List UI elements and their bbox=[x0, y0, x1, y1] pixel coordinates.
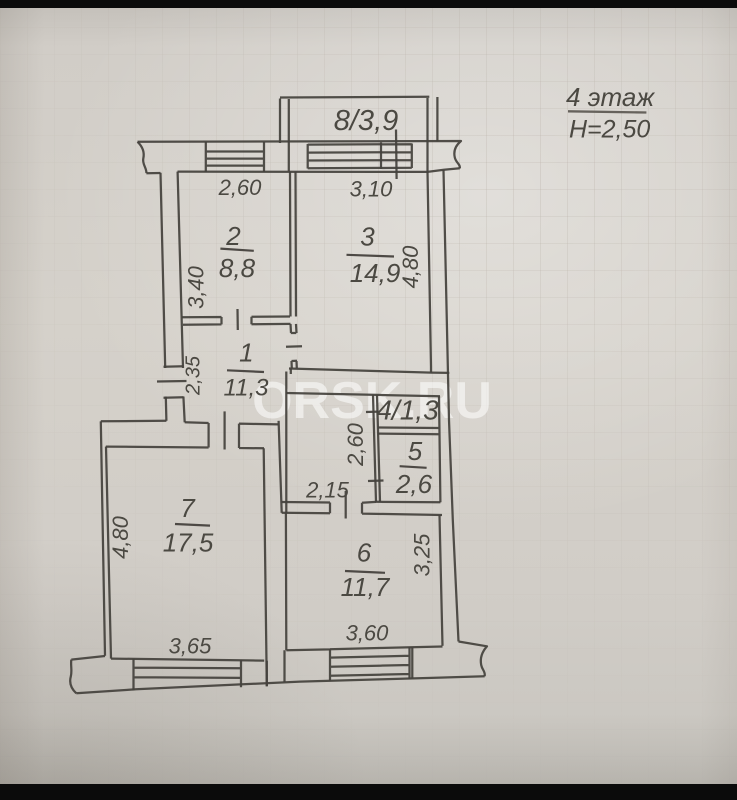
svg-text:3,25: 3,25 bbox=[410, 533, 435, 577]
svg-text:14,9: 14,9 bbox=[350, 258, 401, 288]
svg-text:2,60: 2,60 bbox=[343, 422, 368, 467]
svg-text:8,8: 8,8 bbox=[219, 253, 256, 283]
svg-text:3,10: 3,10 bbox=[350, 177, 394, 202]
svg-text:5: 5 bbox=[408, 436, 423, 466]
svg-text:3: 3 bbox=[360, 222, 375, 252]
svg-text:11,7: 11,7 bbox=[341, 572, 391, 602]
svg-text:2,35: 2,35 bbox=[183, 355, 205, 396]
svg-text:Н=2,50: Н=2,50 bbox=[569, 116, 650, 144]
svg-text:7: 7 bbox=[180, 493, 196, 523]
svg-text:2,6: 2,6 bbox=[395, 469, 433, 499]
svg-text:4,80: 4,80 bbox=[108, 515, 133, 559]
svg-text:3,60: 3,60 bbox=[346, 621, 390, 646]
svg-text:11,3: 11,3 bbox=[224, 375, 270, 402]
svg-text:4/1,3: 4/1,3 bbox=[376, 395, 439, 426]
svg-text:1: 1 bbox=[239, 338, 253, 368]
svg-text:4,80: 4,80 bbox=[398, 245, 423, 289]
svg-text:3,65: 3,65 bbox=[169, 634, 213, 659]
svg-text:17,5: 17,5 bbox=[163, 528, 214, 558]
svg-text:8/3,9: 8/3,9 bbox=[334, 105, 399, 137]
svg-text:4 этаж: 4 этаж bbox=[566, 82, 655, 112]
svg-text:2,60: 2,60 bbox=[218, 175, 263, 200]
svg-text:2: 2 bbox=[225, 221, 241, 251]
svg-text:2,15: 2,15 bbox=[305, 478, 350, 503]
svg-text:6: 6 bbox=[357, 538, 372, 568]
svg-text:3,40: 3,40 bbox=[184, 265, 209, 309]
svg-text:ORSK.RU: ORSK.RU bbox=[252, 372, 492, 430]
